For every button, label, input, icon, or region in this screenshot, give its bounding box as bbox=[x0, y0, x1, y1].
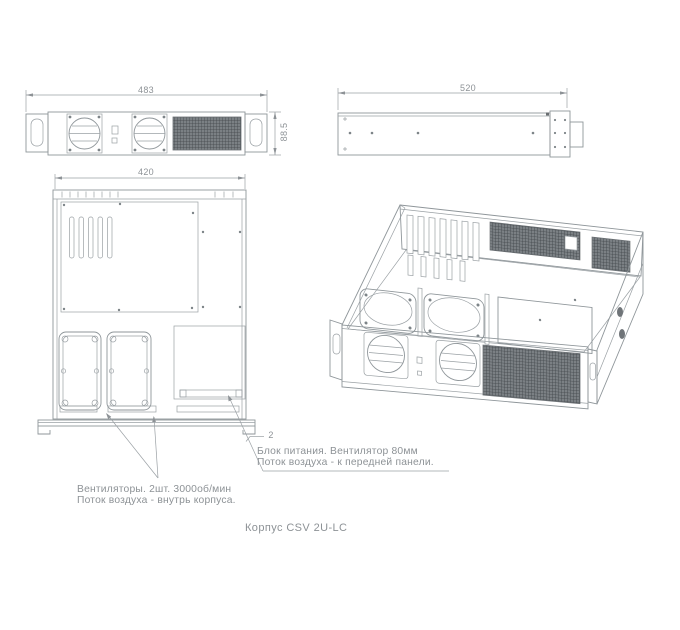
psu-callout-line1: Блок питания. Вентилятор 80мм bbox=[257, 446, 434, 457]
fans-callout: Вентиляторы. 2шт. 3000об/мин Поток возду… bbox=[77, 484, 236, 506]
fans-leader bbox=[106, 413, 158, 478]
psu-callout-line2: Поток воздуха - к передней панели. bbox=[257, 457, 434, 468]
fans-callout-line1: Вентиляторы. 2шт. 3000об/мин bbox=[77, 484, 236, 495]
psu-callout: Блок питания. Вентилятор 80мм Поток возд… bbox=[257, 446, 434, 468]
dimension-top-width: 420 bbox=[96, 167, 196, 177]
technical-drawing-sheet: 483 88.5 520 420 2 Блок питания. Вентиля… bbox=[0, 0, 680, 630]
dimension-front-width: 483 bbox=[96, 85, 196, 95]
dimension-front-height: 88.5 bbox=[279, 120, 289, 144]
drawing-caption: Корпус CSV 2U-LC bbox=[245, 522, 347, 534]
fans-callout-line2: Поток воздуха - внутрь корпуса. bbox=[77, 495, 236, 506]
dimension-side-length: 520 bbox=[418, 83, 518, 93]
dimension-flange-thickness: 2 bbox=[264, 430, 278, 440]
